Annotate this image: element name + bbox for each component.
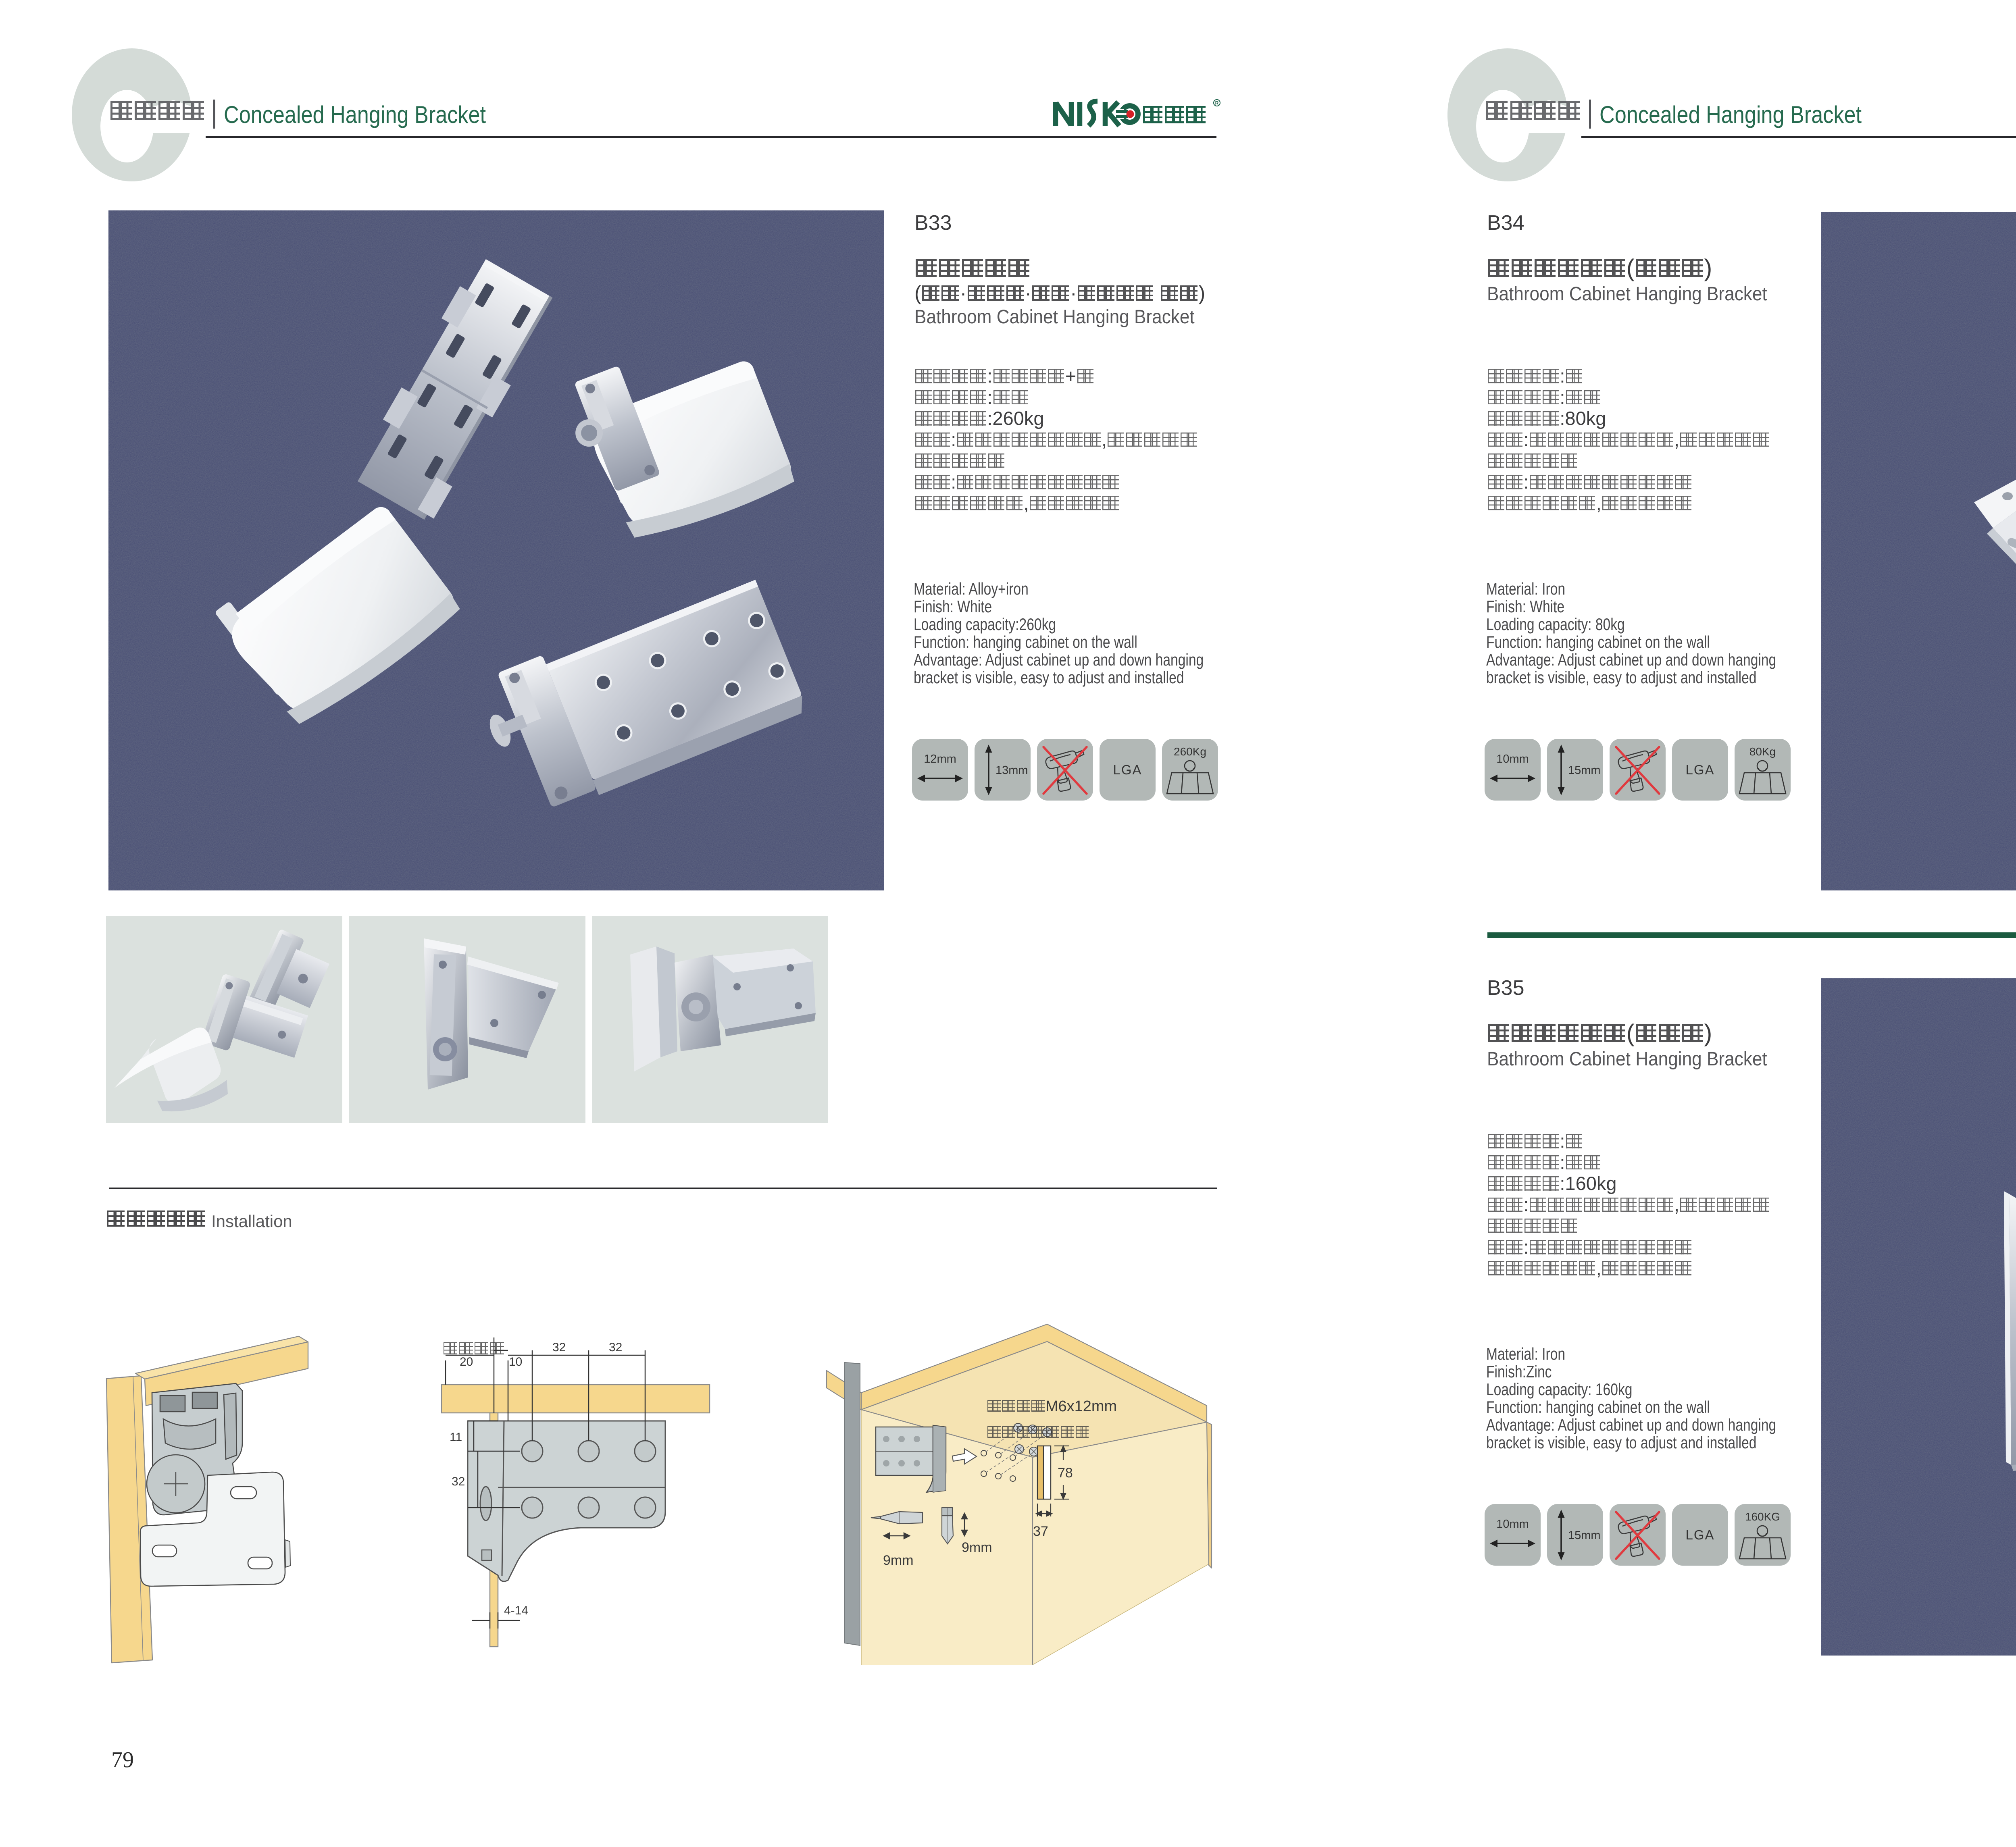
svg-text:32: 32 xyxy=(452,1475,465,1488)
svg-text:R: R xyxy=(1215,100,1219,106)
svg-text:4-14: 4-14 xyxy=(504,1604,528,1617)
svg-text:10: 10 xyxy=(509,1355,522,1369)
svg-text:32: 32 xyxy=(552,1341,566,1354)
svg-text:11: 11 xyxy=(450,1431,462,1444)
svg-text:32: 32 xyxy=(609,1341,622,1354)
